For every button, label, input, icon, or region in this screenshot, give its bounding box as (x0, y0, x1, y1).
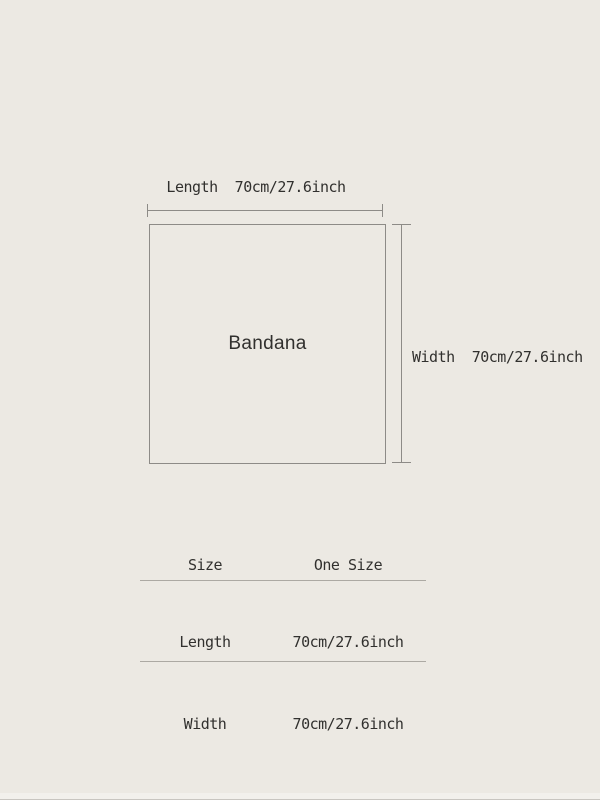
length-row-value: 70cm/27.6inch (270, 633, 426, 652)
size-table-row-length: Length 70cm/27.6inch (140, 619, 426, 662)
product-name-label: Bandana (228, 333, 306, 355)
length-row-label: Length (140, 633, 270, 652)
size-table: Size One Size Length 70cm/27.6inch Width… (140, 512, 426, 782)
width-row-label: Width (140, 715, 270, 734)
width-measure-line (401, 224, 402, 463)
size-chart-page: Length 70cm/27.6inch Bandana Width 70cm/… (0, 0, 600, 800)
measure-cap-top (392, 224, 411, 225)
length-measure-line (147, 210, 383, 211)
size-table-row-width: Width 70cm/27.6inch (140, 700, 426, 744)
bandana-outline: Bandana (149, 224, 386, 464)
width-dimension-label: Width 70cm/27.6inch (412, 348, 583, 367)
size-table-header-row: Size One Size (140, 550, 426, 581)
one-size-column-header: One Size (270, 556, 426, 575)
measure-cap-bottom (392, 462, 411, 463)
measure-tick-right (382, 204, 383, 217)
size-column-header: Size (140, 556, 270, 575)
width-row-value: 70cm/27.6inch (270, 715, 426, 734)
measure-tick-left (147, 204, 148, 217)
length-dimension-label: Length 70cm/27.6inch (0, 178, 512, 197)
